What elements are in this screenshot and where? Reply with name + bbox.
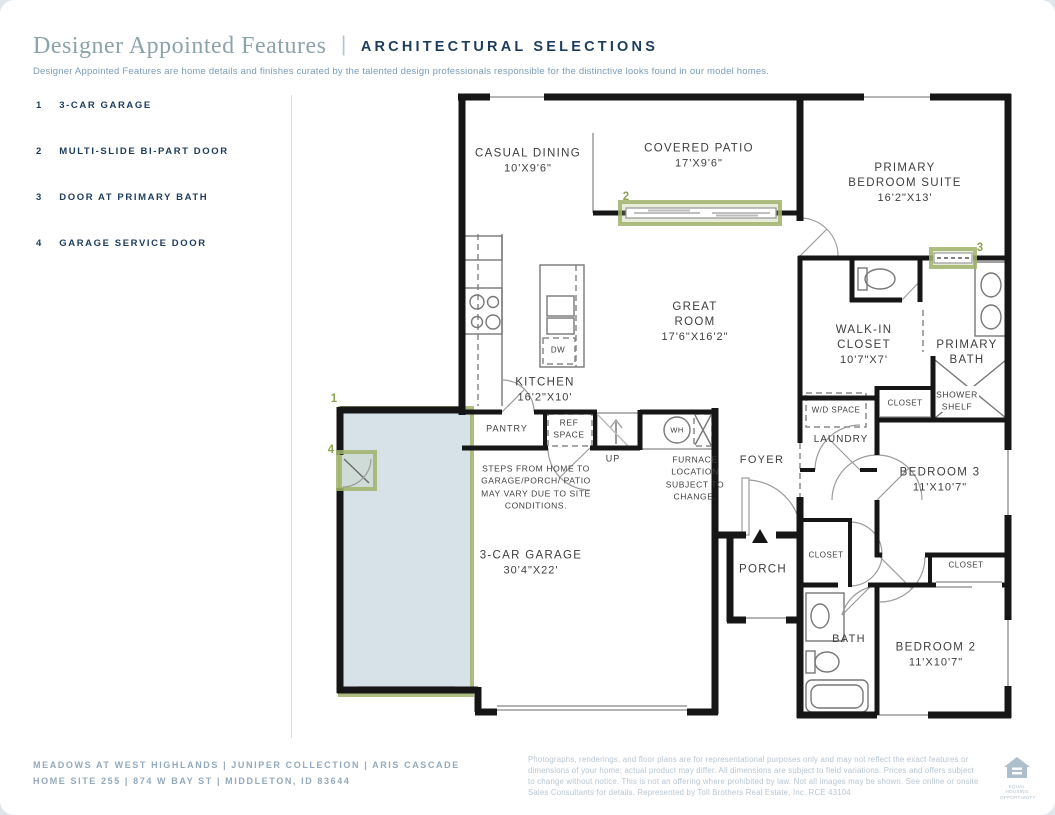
room-label-covered-patio: COVERED PATIO 17'X9'6" bbox=[619, 141, 779, 170]
room-label-bath: BATH bbox=[832, 632, 866, 646]
room-label-kitchen: KITCHEN 16'2"X10' bbox=[485, 375, 605, 404]
room-label-pantry: PANTRY bbox=[486, 423, 528, 434]
label-linen-closet: CLOSET bbox=[887, 399, 922, 408]
room-label-walk-in-closet: WALK-IN CLOSET 10'7"X7' bbox=[824, 323, 904, 367]
room-label-ref-space: REF SPACE bbox=[548, 417, 590, 442]
note-furnace: FURNACE LOCATION SUBJECT TO CHANGE. bbox=[649, 453, 741, 502]
note-steps: STEPS FROM HOME TO GARAGE/PORCH/ PATIO M… bbox=[474, 462, 598, 511]
room-label-bedroom3: BEDROOM 3 11'X10'7" bbox=[875, 465, 1005, 494]
callout-3-primary-bath-door: 3 bbox=[977, 242, 983, 254]
room-label-primary-bath: PRIMARY BATH bbox=[930, 338, 1004, 368]
callout-1-garage-bay: 1 bbox=[331, 393, 337, 405]
room-label-bedroom2: BEDROOM 2 11'X10'7" bbox=[871, 640, 1001, 669]
page: Designer Appointed Features | ARCHITECTU… bbox=[0, 0, 1055, 815]
floor-plan-drawing bbox=[0, 0, 1055, 815]
label-stairs-up: UP bbox=[606, 453, 621, 464]
label-wd-space: W/D SPACE bbox=[812, 406, 861, 415]
room-label-foyer: FOYER bbox=[740, 453, 784, 467]
entry-door-leaf bbox=[742, 478, 749, 535]
callout-4-service-door: 4 bbox=[328, 444, 334, 456]
room-label-great-room: GREAT ROOM 17'6"X16'2" bbox=[660, 300, 730, 344]
label-water-heater: WH bbox=[670, 426, 683, 435]
label-dishwasher: DW bbox=[551, 346, 565, 355]
room-label-garage: 3-CAR GARAGE 30'4"X22' bbox=[451, 548, 611, 577]
room-label-casual-dining: CASUAL DINING 10'X9'6" bbox=[453, 146, 603, 175]
highlight-garage-service-door bbox=[338, 452, 375, 489]
highlight-multislide-door bbox=[620, 202, 780, 224]
room-label-porch: PORCH bbox=[739, 563, 787, 578]
room-label-laundry: LAUNDRY bbox=[814, 434, 869, 447]
label-shower-shelf: SHOWER SHELF bbox=[929, 389, 985, 414]
label-bedroom2-closet: CLOSET bbox=[948, 561, 983, 570]
entry-marker-triangle bbox=[752, 529, 768, 543]
callout-2-multislide-door: 2 bbox=[623, 191, 629, 203]
label-hall-closet: CLOSET bbox=[808, 551, 843, 560]
highlight-primary-bath-door bbox=[931, 249, 975, 267]
room-label-primary-suite: PRIMARY BEDROOM SUITE 16'2"X13' bbox=[846, 161, 964, 205]
